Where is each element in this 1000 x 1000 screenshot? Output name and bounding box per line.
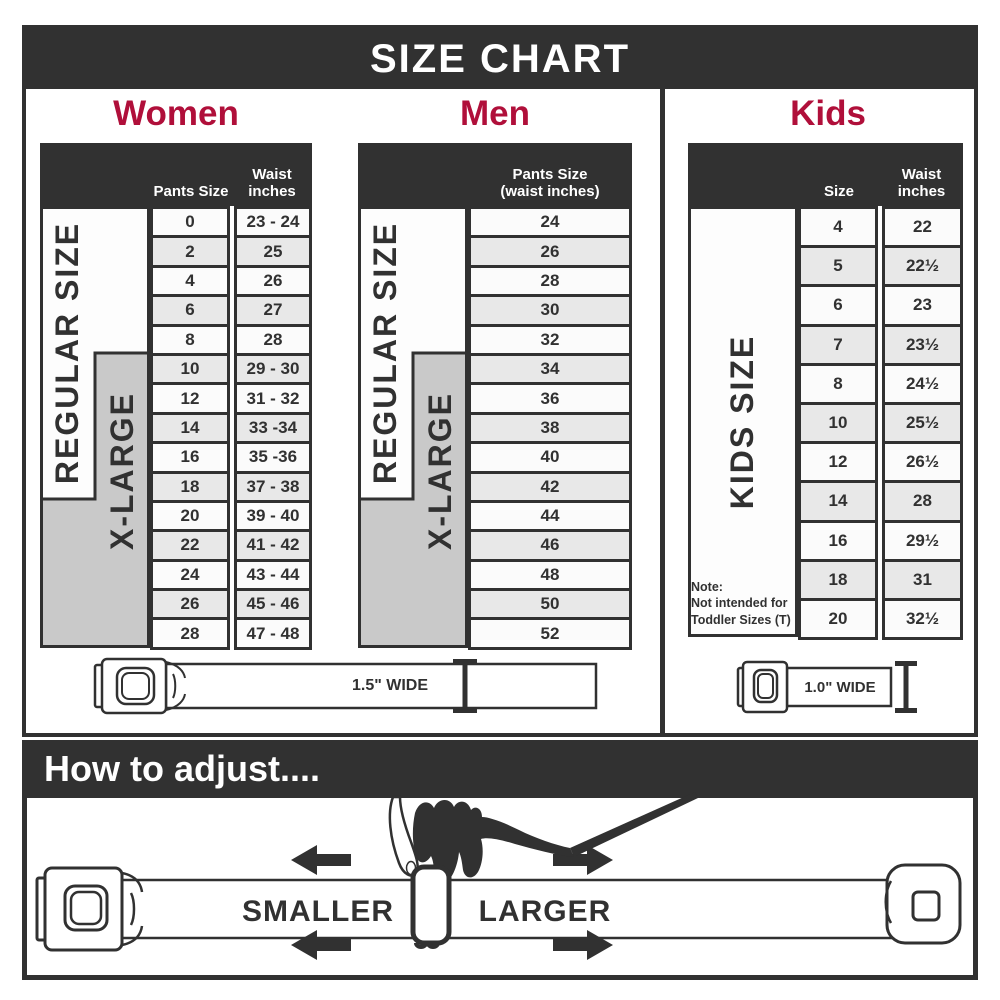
table-row: 46 — [468, 529, 632, 561]
table-cell: 26 — [234, 265, 312, 297]
table-row: 422 — [798, 206, 963, 248]
table-cell: 33 -34 — [234, 412, 312, 444]
table-row: 38 — [468, 412, 632, 444]
section-divider — [660, 89, 665, 733]
table-cell: 27 — [234, 294, 312, 326]
table-cell: 0 — [150, 206, 230, 238]
table-cell: 35 -36 — [234, 441, 312, 473]
table-row: 1635 -36 — [150, 441, 312, 473]
table-row: 2645 - 46 — [150, 588, 312, 620]
women-pants-size-header: Pants Size — [150, 183, 232, 201]
table-cell: 28 — [234, 324, 312, 356]
table-row: 1029 - 30 — [150, 353, 312, 385]
table-cell: 28 — [468, 265, 632, 297]
table-cell: 29 - 30 — [234, 353, 312, 385]
table-cell: 34 — [468, 353, 632, 385]
women-rows: 023 - 242254266278281029 - 301231 - 3214… — [150, 206, 312, 650]
table-cell: 10 — [798, 402, 878, 444]
men-xlarge-label: X-LARGE — [422, 371, 458, 571]
table-cell: 46 — [468, 529, 632, 561]
table-cell: 20 — [798, 598, 878, 640]
table-row: 522½ — [798, 245, 963, 287]
men-rows: 242628303234363840424446485052 — [468, 206, 632, 650]
table-cell: 25½ — [882, 402, 963, 444]
table-cell: 31 — [882, 559, 963, 601]
tongue-slot — [913, 892, 939, 920]
kids-section-heading: Kids — [698, 93, 958, 135]
table-row: 1629½ — [798, 520, 963, 562]
table-cell: 48 — [468, 559, 632, 591]
how-to-adjust-title: How to adjust.... — [22, 748, 320, 790]
table-row: 2443 - 44 — [150, 559, 312, 591]
table-row: 24 — [468, 206, 632, 238]
width-measure-icon — [904, 661, 909, 713]
table-row: 2039 - 40 — [150, 500, 312, 532]
table-cell: 12 — [798, 441, 878, 483]
kids-waist-header: Waist inches — [880, 166, 963, 201]
table-cell: 18 — [150, 471, 230, 503]
table-cell: 22 — [150, 529, 230, 561]
kids-size-header: Size — [798, 183, 880, 201]
table-cell: 40 — [468, 441, 632, 473]
table-row: 2847 - 48 — [150, 617, 312, 649]
note-line: Not intended for — [691, 595, 795, 611]
table-cell: 37 - 38 — [234, 471, 312, 503]
title-bar: SIZE CHART — [26, 29, 974, 89]
table-cell: 8 — [798, 363, 878, 405]
table-cell: 24 — [150, 559, 230, 591]
women-waist-header: Waist inches — [232, 166, 312, 201]
table-cell: 23 - 24 — [234, 206, 312, 238]
table-cell: 45 - 46 — [234, 588, 312, 620]
larger-label: LARGER — [455, 895, 635, 929]
table-row: 627 — [150, 294, 312, 326]
table-row: 50 — [468, 588, 632, 620]
table-cell: 7 — [798, 324, 878, 366]
table-cell: 14 — [150, 412, 230, 444]
kids-belt-width-label: 1.0" WIDE — [795, 679, 885, 696]
table-cell: 14 — [798, 480, 878, 522]
note-line: Note: — [691, 579, 795, 595]
women-section-heading: Women — [46, 93, 306, 135]
table-cell: 28 — [882, 480, 963, 522]
table-cell: 20 — [150, 500, 230, 532]
table-cell: 29½ — [882, 520, 963, 562]
men-regular-size-label: REGULAR SIZE — [367, 203, 403, 503]
page-title: SIZE CHART — [370, 37, 630, 82]
table-row: 1025½ — [798, 402, 963, 444]
how-to-adjust-panel: How to adjust.... SMALLER LARGER — [22, 740, 978, 980]
table-cell: 10 — [150, 353, 230, 385]
table-cell: 43 - 44 — [234, 559, 312, 591]
table-row: 36 — [468, 382, 632, 414]
men-pants-size-header: Pants Size (waist inches) — [468, 166, 632, 201]
table-cell: 16 — [798, 520, 878, 562]
table-cell: 4 — [798, 206, 878, 248]
women-table-header: Pants Size Waist inches — [40, 143, 312, 206]
kids-table-header: Size Waist inches — [688, 143, 963, 206]
kids-size-label: KIDS SIZE — [724, 312, 760, 532]
table-cell: 6 — [150, 294, 230, 326]
table-cell: 5 — [798, 245, 878, 287]
table-cell: 22 — [882, 206, 963, 248]
table-cell: 30 — [468, 294, 632, 326]
table-cell: 25 — [234, 235, 312, 267]
kids-note: Note: Not intended for Toddler Sizes (T) — [691, 579, 795, 628]
table-cell: 50 — [468, 588, 632, 620]
buckle-button-inner — [758, 674, 773, 698]
table-cell: 23½ — [882, 324, 963, 366]
table-row: 28 — [468, 265, 632, 297]
table-cell: 42 — [468, 471, 632, 503]
table-cell: 31 - 32 — [234, 382, 312, 414]
table-row: 34 — [468, 353, 632, 385]
table-row: 623 — [798, 284, 963, 326]
table-cell: 24½ — [882, 363, 963, 405]
table-row: 723½ — [798, 324, 963, 366]
table-row: 824½ — [798, 363, 963, 405]
table-row: 1231 - 32 — [150, 382, 312, 414]
table-row: 2032½ — [798, 598, 963, 640]
table-row: 1837 - 38 — [150, 471, 312, 503]
table-row: 1226½ — [798, 441, 963, 483]
table-cell: 39 - 40 — [234, 500, 312, 532]
table-cell: 41 - 42 — [234, 529, 312, 561]
table-row: 40 — [468, 441, 632, 473]
table-cell: 44 — [468, 500, 632, 532]
kids-rows: 422522½623723½824½1025½1226½14281629½183… — [798, 206, 963, 640]
table-cell: 32 — [468, 324, 632, 356]
buckle-button-inner — [122, 673, 149, 699]
table-cell: 8 — [150, 324, 230, 356]
table-row: 52 — [468, 617, 632, 649]
table-cell: 47 - 48 — [234, 617, 312, 649]
table-row: 32 — [468, 324, 632, 356]
table-cell: 24 — [468, 206, 632, 238]
table-cell: 26 — [150, 588, 230, 620]
belt-slider — [413, 867, 449, 943]
table-cell: 36 — [468, 382, 632, 414]
table-row: 1428 — [798, 480, 963, 522]
men-table-header: Pants Size (waist inches) — [358, 143, 632, 206]
size-chart-page: SIZE CHART Women Men Kids Pants Size Wai… — [0, 0, 1000, 1000]
table-row: 2241 - 42 — [150, 529, 312, 561]
table-cell: 6 — [798, 284, 878, 326]
width-measure-icon — [463, 659, 468, 713]
adult-belt-width-label: 1.5" WIDE — [330, 677, 450, 695]
table-cell: 16 — [150, 441, 230, 473]
arrow-left-icon — [291, 845, 351, 875]
table-cell: 26½ — [882, 441, 963, 483]
table-row: 023 - 24 — [150, 206, 312, 238]
adjustment-diagram — [25, 795, 971, 977]
table-cell: 22½ — [882, 245, 963, 287]
table-row: 1831 — [798, 559, 963, 601]
table-cell: 23 — [882, 284, 963, 326]
table-row: 26 — [468, 235, 632, 267]
note-line: Toddler Sizes (T) — [691, 612, 795, 628]
table-row: 1433 -34 — [150, 412, 312, 444]
women-xlarge-label: X-LARGE — [104, 371, 140, 571]
table-cell: 26 — [468, 235, 632, 267]
men-section-heading: Men — [365, 93, 625, 135]
table-row: 225 — [150, 235, 312, 267]
table-cell: 38 — [468, 412, 632, 444]
buckle-button-inner — [71, 892, 101, 924]
table-row: 48 — [468, 559, 632, 591]
table-cell: 28 — [150, 617, 230, 649]
table-cell: 4 — [150, 265, 230, 297]
how-to-adjust-bar: How to adjust.... — [22, 740, 978, 798]
table-row: 30 — [468, 294, 632, 326]
table-cell: 18 — [798, 559, 878, 601]
table-row: 426 — [150, 265, 312, 297]
table-row: 44 — [468, 500, 632, 532]
table-row: 42 — [468, 471, 632, 503]
table-cell: 2 — [150, 235, 230, 267]
table-row: 828 — [150, 324, 312, 356]
size-chart-panel: SIZE CHART Women Men Kids Pants Size Wai… — [22, 25, 978, 737]
smaller-label: SMALLER — [228, 895, 408, 929]
women-regular-size-label: REGULAR SIZE — [49, 203, 85, 503]
pulled-strap-line — [570, 792, 698, 857]
table-cell: 32½ — [882, 598, 963, 640]
table-cell: 52 — [468, 617, 632, 649]
table-cell: 12 — [150, 382, 230, 414]
